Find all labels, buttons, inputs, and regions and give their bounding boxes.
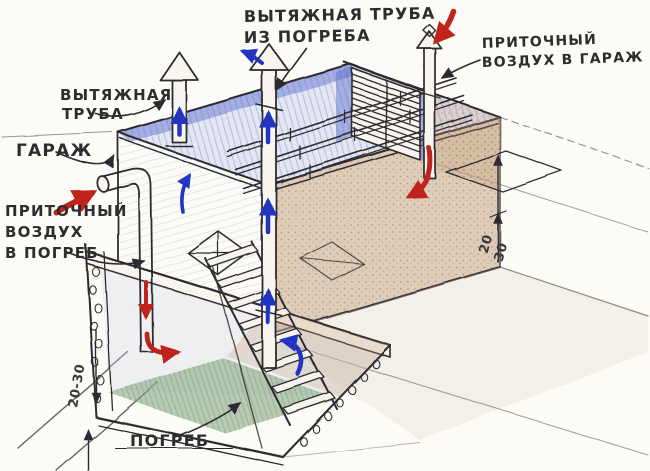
label-supply-to-cellar-line2: ВОЗДУХ — [5, 223, 84, 241]
label-exhaust-pipe-line1: ВЫТЯЖНАЯ — [60, 86, 172, 104]
label-exhaust-from-cellar-line1: ВЫТЯЖНАЯ ТРУБА — [244, 4, 436, 26]
label-cellar: ПОГРЕБ — [130, 431, 209, 450]
dim-cellar-wall-text: 20-30 — [66, 363, 88, 409]
label-supply-to-garage-line2: ВОЗДУХ В ГАРАЖ — [482, 49, 644, 71]
label-garage: ГАРАЖ — [16, 141, 92, 161]
label-supply-to-cellar-line1: ПРИТОЧНЫЙ — [5, 201, 128, 220]
label-supply-to-garage-line1: ПРИТОЧНЫЙ — [482, 31, 598, 52]
label-exhaust-from-cellar-line2: ИЗ ПОГРЕБА — [244, 26, 371, 47]
hand-drawn-ventilation-diagram: ВЫТЯЖНАЯ ТРУБА ИЗ ПОГРЕБА ПРИТОЧНЫЙ ВОЗД… — [0, 0, 650, 471]
label-supply-to-cellar-line3: В ПОГРЕБ — [5, 244, 99, 262]
label-exhaust-pipe-line2: ТРУБА — [62, 105, 124, 123]
sketch-sheet: ВЫТЯЖНАЯ ТРУБА ИЗ ПОГРЕБА ПРИТОЧНЫЙ ВОЗД… — [0, 0, 650, 471]
